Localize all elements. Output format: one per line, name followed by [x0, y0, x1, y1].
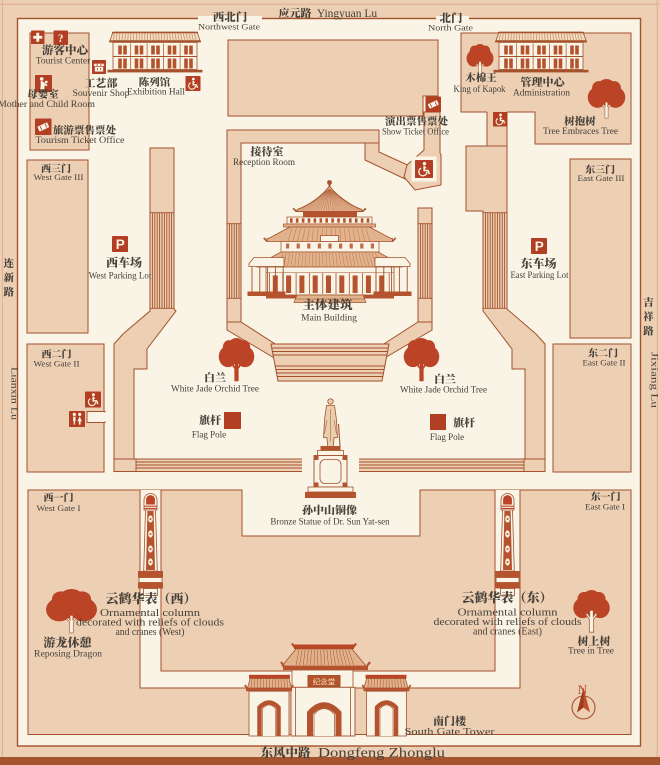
- svg-text:West Parking Lot: West Parking Lot: [89, 271, 152, 281]
- svg-text:King of Kapok: King of Kapok: [454, 84, 506, 94]
- svg-text:East Gate I: East Gate I: [585, 502, 625, 512]
- svg-text:Tourism Ticket Office: Tourism Ticket Office: [36, 135, 125, 146]
- svg-text:纪念堂: 纪念堂: [313, 677, 336, 687]
- svg-text:Tree in Tree: Tree in Tree: [568, 646, 614, 656]
- svg-text:Bronze Statue of Dr. Sun Yat-s: Bronze Statue of Dr. Sun Yat-sen: [270, 517, 390, 527]
- svg-text:Flag Pole: Flag Pole: [192, 430, 226, 440]
- svg-text:Main Building: Main Building: [301, 314, 357, 324]
- svg-text:Dongfeng Zhonglu: Dongfeng Zhonglu: [318, 745, 445, 760]
- svg-text:Mother and Child Room: Mother and Child Room: [0, 100, 96, 110]
- svg-text:Souvenir Shop: Souvenir Shop: [73, 89, 130, 99]
- svg-text:West Gate III: West Gate III: [34, 172, 84, 182]
- svg-text:East Parking Lot: East Parking Lot: [511, 270, 569, 280]
- svg-text:and cranes (West): and cranes (West): [116, 627, 185, 638]
- svg-text:Lianxin Lu: Lianxin Lu: [9, 367, 19, 420]
- svg-text:White Jade Orchid Tree: White Jade Orchid Tree: [171, 384, 259, 394]
- svg-text:Reposing Dragon: Reposing Dragon: [34, 649, 103, 659]
- svg-text:South Gate Tower: South Gate Tower: [405, 727, 496, 738]
- svg-text:Jixiang Lu: Jixiang Lu: [649, 352, 659, 408]
- svg-text:Exhibition Hall: Exhibition Hall: [127, 88, 185, 98]
- svg-text:North Gate: North Gate: [428, 23, 473, 33]
- svg-text:East Gate II: East Gate II: [583, 358, 626, 368]
- svg-text:East Gate III: East Gate III: [578, 173, 625, 183]
- svg-text:Yingyuan Lu: Yingyuan Lu: [317, 8, 378, 20]
- svg-text:Northwest Gate: Northwest Gate: [198, 22, 260, 32]
- svg-text:Reception Room: Reception Room: [233, 157, 295, 167]
- svg-text:Tree Embraces Tree: Tree Embraces Tree: [543, 126, 618, 136]
- svg-text:West Gate II: West Gate II: [34, 359, 80, 369]
- svg-text:Administration: Administration: [513, 88, 571, 98]
- svg-text:Flag Pole: Flag Pole: [430, 432, 464, 442]
- svg-text:White Jade Orchid Tree: White Jade Orchid Tree: [400, 385, 487, 395]
- svg-text:Show Ticket Office: Show Ticket Office: [382, 127, 449, 137]
- svg-text:and cranes (East): and cranes (East): [473, 627, 542, 638]
- svg-text:Tourist Center: Tourist Center: [36, 57, 91, 67]
- svg-text:West Gate I: West Gate I: [37, 503, 81, 513]
